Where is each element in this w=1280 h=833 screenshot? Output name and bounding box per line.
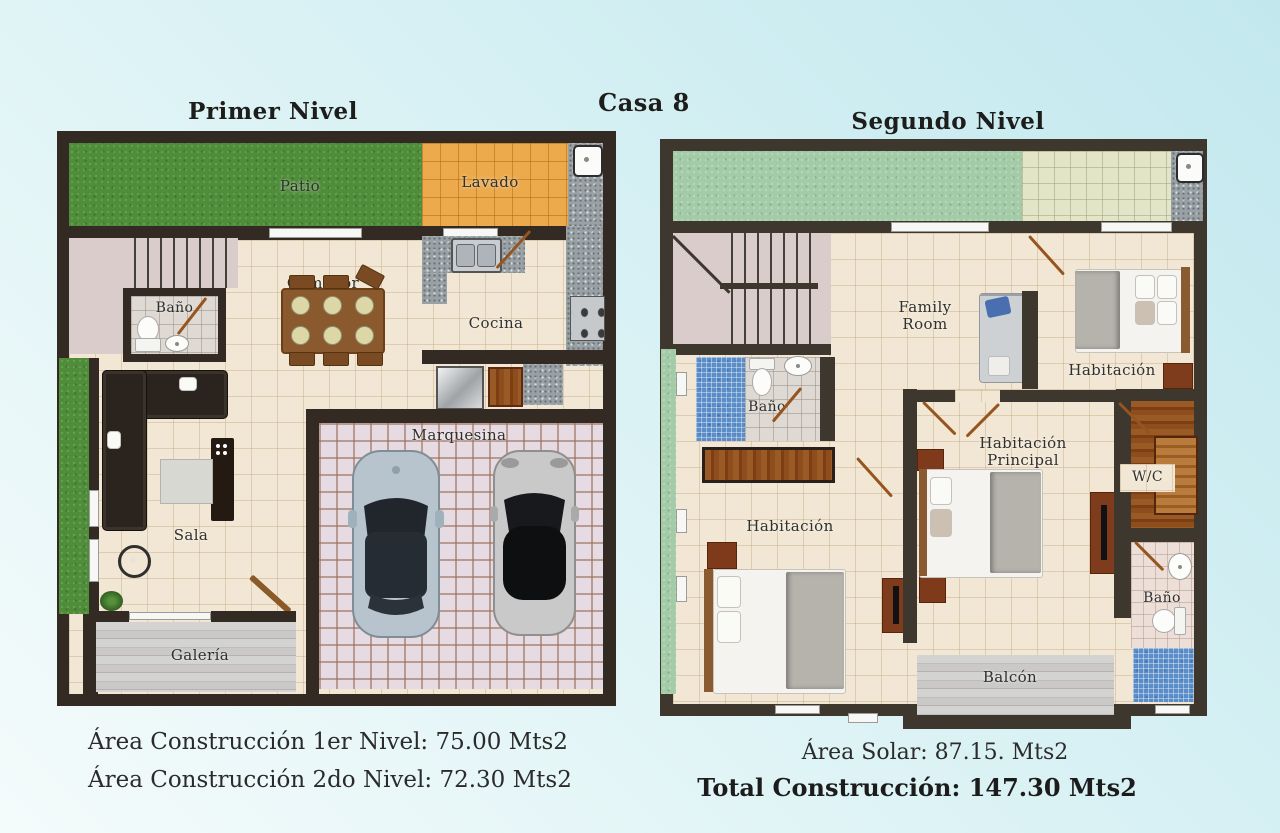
room-label-habitacion-principal: Habitación Principal — [958, 435, 1088, 469]
wall — [903, 389, 917, 643]
laundry-sink — [573, 145, 603, 177]
sink — [784, 356, 812, 376]
nightstand — [707, 542, 737, 569]
window — [676, 576, 687, 602]
bed-headboard — [1181, 267, 1190, 353]
roof-garden — [673, 151, 1022, 221]
tv-console — [211, 438, 234, 521]
room-label-bano2: Baño — [1132, 590, 1192, 607]
bed-headboard — [919, 469, 927, 576]
wall — [306, 409, 616, 423]
wall — [211, 611, 296, 622]
toilet — [752, 368, 772, 396]
side-yard — [661, 349, 676, 694]
sofa — [979, 293, 1028, 383]
shower — [1133, 648, 1194, 702]
wall — [820, 357, 835, 441]
room-label-bano: Baño — [727, 399, 807, 416]
nightstand — [919, 576, 946, 603]
plan-primer-nivel: Patio Lavado Baño Comedor Coc — [57, 131, 616, 706]
kitchen-counter — [422, 273, 447, 304]
stat-construccion-nivel2: Área Construcción 2do Nivel: 72.30 Mts2 — [88, 767, 572, 793]
laundry-sink — [1176, 153, 1204, 183]
plan2-title: Segundo Nivel — [795, 108, 1101, 135]
window — [676, 509, 687, 533]
side-yard — [59, 358, 89, 614]
room-patio — [69, 143, 422, 226]
room-label-galeria: Galería — [140, 647, 260, 664]
window — [676, 372, 687, 396]
wall — [1131, 528, 1194, 542]
plan-segundo-nivel: Baño Habitación Family Room Habitación — [660, 139, 1207, 729]
sink — [1168, 553, 1192, 580]
sink — [165, 335, 189, 352]
nightstand — [917, 449, 944, 471]
wall — [96, 611, 129, 622]
wall — [1116, 389, 1207, 401]
closet — [702, 447, 835, 483]
side-table — [118, 545, 151, 578]
wall — [306, 409, 319, 694]
bed-blanket — [786, 572, 844, 689]
bed-blanket — [990, 472, 1041, 573]
counter-block — [523, 364, 563, 405]
sliding-door-patio — [269, 228, 362, 238]
room-label-family-room: Family Room — [875, 299, 975, 333]
chair — [357, 352, 383, 366]
room-label-wc: W/C — [1120, 469, 1175, 486]
chair — [323, 352, 349, 366]
wall — [917, 390, 1130, 402]
kitchen-double-sink — [451, 238, 502, 273]
sofa-pillow — [107, 431, 121, 449]
chair — [323, 275, 349, 289]
stair-treads — [123, 238, 238, 288]
wall — [1022, 291, 1038, 389]
stair-landing — [69, 288, 123, 354]
wall — [422, 350, 616, 364]
sheet-title: Casa 8 — [564, 88, 724, 117]
room-label-sala: Sala — [151, 527, 231, 544]
sofa-pillow — [179, 377, 197, 391]
room-label-habitacion2: Habitación — [740, 518, 840, 535]
toilet-tank — [1174, 607, 1186, 635]
plant — [100, 591, 123, 611]
stair-treads — [720, 289, 818, 346]
chair — [289, 352, 315, 366]
rug — [160, 459, 213, 504]
window — [89, 539, 99, 582]
room-label-patio: Patio — [250, 178, 350, 195]
window — [1101, 222, 1172, 232]
window — [775, 705, 820, 714]
sliding-door — [129, 612, 211, 620]
fridge — [436, 366, 484, 410]
stair-treads — [720, 233, 818, 283]
room-label-habitacion: Habitación — [1062, 362, 1162, 379]
chair — [289, 275, 315, 289]
window — [1155, 705, 1190, 714]
room-label-lavado: Lavado — [440, 174, 540, 191]
window — [891, 222, 989, 232]
wall — [673, 344, 831, 355]
wall — [1114, 400, 1131, 618]
dining-table — [281, 288, 385, 354]
roof-terrace — [1022, 151, 1171, 221]
cabinet — [488, 367, 523, 407]
toilet-tank — [135, 338, 161, 352]
toilet — [1152, 609, 1176, 633]
car-icon — [348, 448, 444, 640]
bed-pillow — [717, 576, 741, 608]
door-opening — [955, 390, 1000, 402]
stove — [570, 296, 605, 341]
stat-area-solar: Área Solar: 87.15. Mts2 — [760, 740, 1110, 765]
sofa-chaise — [102, 370, 147, 531]
room-label-marquesina: Marquesina — [399, 427, 519, 444]
dresser — [1163, 363, 1193, 389]
bed-pillow — [717, 611, 741, 643]
car-icon — [490, 448, 579, 638]
window — [89, 490, 99, 527]
stat-total-construccion: Total Construcción: 147.30 Mts2 — [692, 773, 1142, 802]
room-label-cocina: Cocina — [456, 315, 536, 332]
bed-blanket — [1075, 271, 1120, 349]
floor-plan-sheet: Casa 8 Primer Nivel Segundo Nivel Patio … — [0, 0, 1280, 833]
window — [848, 713, 878, 723]
room-label-bano: Baño — [131, 300, 218, 317]
stat-construccion-nivel1: Área Construcción 1er Nivel: 75.00 Mts2 — [88, 729, 568, 755]
plan1-title: Primer Nivel — [120, 98, 426, 125]
room-label-balcon: Balcón — [950, 669, 1070, 686]
bed-headboard — [704, 569, 713, 692]
